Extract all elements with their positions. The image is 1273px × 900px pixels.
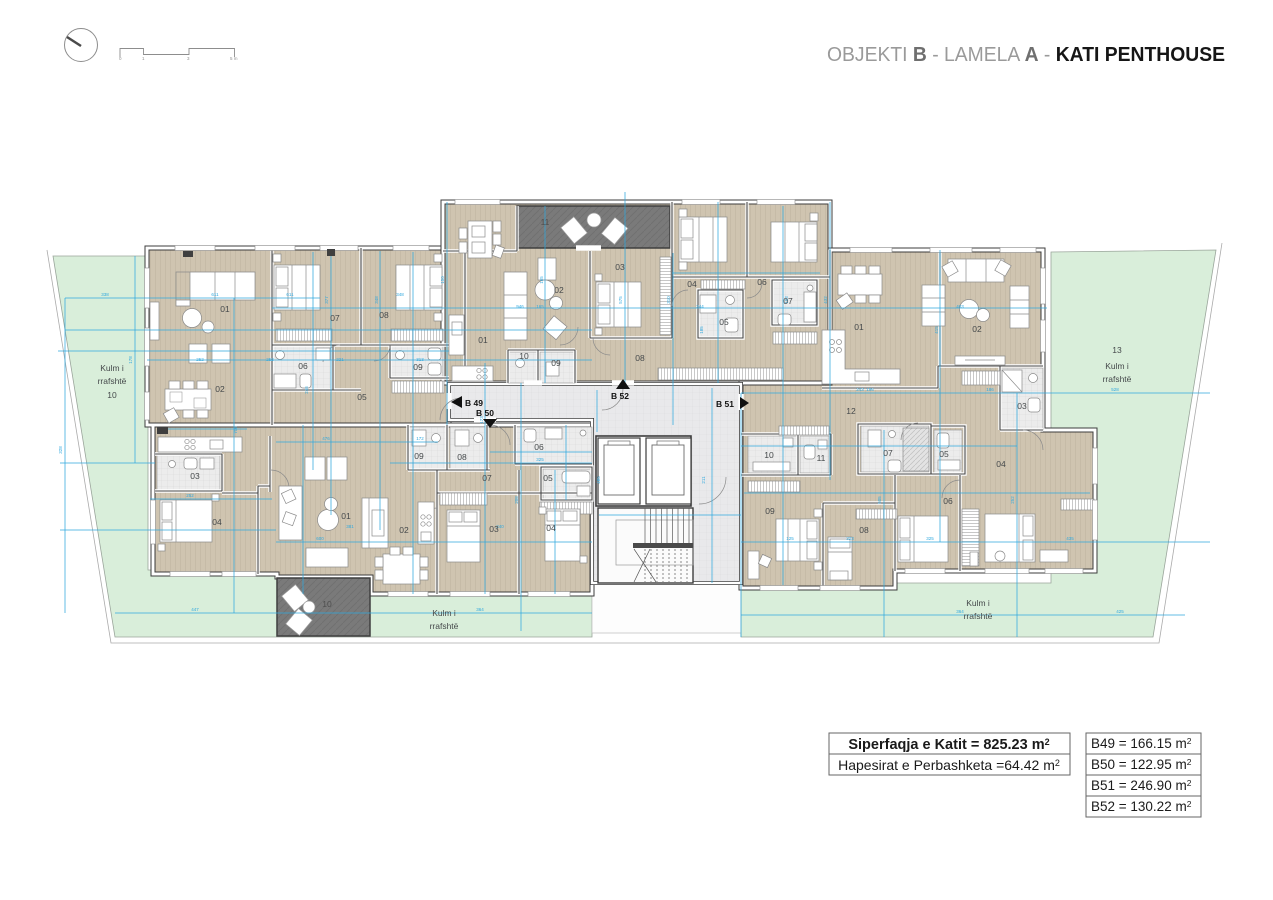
svg-text:07: 07	[482, 473, 492, 483]
svg-text:611: 611	[211, 292, 219, 297]
svg-text:310: 310	[666, 296, 671, 304]
svg-text:125: 125	[786, 536, 794, 541]
svg-text:B 51: B 51	[716, 399, 734, 409]
svg-text:10: 10	[107, 390, 117, 400]
svg-text:08: 08	[859, 525, 869, 535]
svg-text:05: 05	[939, 449, 949, 459]
svg-text:B 50: B 50	[476, 408, 494, 418]
svg-text:485: 485	[596, 476, 601, 484]
svg-text:05: 05	[543, 473, 553, 483]
svg-text:08: 08	[457, 452, 467, 462]
svg-text:425: 425	[1116, 609, 1124, 614]
svg-text:07: 07	[783, 296, 793, 306]
svg-text:06: 06	[534, 442, 544, 452]
svg-text:09: 09	[551, 358, 561, 368]
svg-text:03: 03	[190, 471, 200, 481]
svg-text:476: 476	[322, 436, 330, 441]
svg-text:Hapesirat e Perbashketa =64.4: Hapesirat e Perbashketa =64.42 m2	[838, 757, 1060, 773]
svg-text:252: 252	[266, 357, 274, 362]
svg-text:338: 338	[101, 292, 109, 297]
svg-text:OBJEKTI B - LAMELA A - KATI PE: OBJEKTI B - LAMELA A - KATI PENTHOUSE	[827, 44, 1225, 66]
svg-text:B 52: B 52	[611, 391, 629, 401]
svg-text:165: 165	[539, 276, 544, 284]
svg-text:172: 172	[416, 436, 424, 441]
svg-text:03: 03	[1017, 401, 1027, 411]
svg-text:06: 06	[298, 361, 308, 371]
svg-text:364: 364	[476, 607, 484, 612]
svg-text:06: 06	[943, 496, 953, 506]
svg-text:377: 377	[324, 296, 329, 304]
svg-text:208: 208	[514, 496, 519, 504]
svg-text:08: 08	[379, 310, 389, 320]
svg-text:432: 432	[823, 296, 828, 304]
svg-text:02: 02	[972, 324, 982, 334]
svg-text:03: 03	[615, 262, 625, 272]
svg-text:323: 323	[846, 536, 854, 541]
svg-text:10: 10	[519, 351, 529, 361]
svg-text:01: 01	[854, 322, 864, 332]
svg-text:706: 706	[233, 426, 238, 434]
svg-text:415: 415	[934, 326, 939, 334]
svg-text:06: 06	[757, 277, 767, 287]
svg-text:rrafshtë: rrafshtë	[430, 621, 459, 631]
svg-text:Kulm i: Kulm i	[966, 598, 990, 608]
svg-text:528: 528	[1111, 387, 1119, 392]
svg-text:186: 186	[986, 387, 994, 392]
svg-text:B49 = 166.15 m2: B49 = 166.15 m2	[1091, 736, 1192, 751]
svg-text:B51 = 246.90 m2: B51 = 246.90 m2	[1091, 778, 1192, 793]
svg-text:09: 09	[414, 451, 424, 461]
svg-text:185: 185	[699, 326, 704, 334]
svg-text:09: 09	[413, 362, 423, 372]
svg-text:B50 = 122.95 m2: B50 = 122.95 m2	[1091, 757, 1192, 772]
svg-text:435: 435	[1066, 536, 1074, 541]
svg-text:221: 221	[336, 357, 344, 362]
svg-text:243: 243	[856, 387, 864, 392]
svg-text:10: 10	[764, 450, 774, 460]
svg-text:252: 252	[186, 493, 194, 498]
svg-text:02: 02	[215, 384, 225, 394]
svg-text:178: 178	[128, 356, 133, 364]
svg-text:Kulm i: Kulm i	[100, 363, 124, 373]
svg-text:13: 13	[1112, 345, 1122, 355]
svg-text:rrafshtë: rrafshtë	[98, 376, 127, 386]
svg-text:01: 01	[341, 511, 351, 521]
svg-text:252: 252	[196, 357, 204, 362]
svg-text:02: 02	[399, 525, 409, 535]
svg-text:03: 03	[489, 524, 499, 534]
svg-text:403: 403	[956, 304, 964, 309]
svg-text:196: 196	[866, 387, 874, 392]
svg-text:381: 381	[346, 524, 354, 529]
svg-text:348: 348	[396, 292, 404, 297]
svg-text:Kulm i: Kulm i	[432, 608, 456, 618]
svg-text:5 m: 5 m	[230, 56, 238, 61]
svg-text:rrafshtë: rrafshtë	[964, 611, 993, 621]
svg-text:600: 600	[316, 536, 324, 541]
svg-text:Siperfaqja e Katit = 825.23 m2: Siperfaqja e Katit = 825.23 m2	[848, 737, 1049, 753]
svg-text:09: 09	[765, 506, 775, 516]
svg-text:B52 = 130.22 m2: B52 = 130.22 m2	[1091, 799, 1192, 814]
svg-text:325: 325	[536, 457, 544, 462]
svg-text:04: 04	[996, 459, 1006, 469]
svg-text:946: 946	[516, 304, 524, 309]
svg-text:07: 07	[883, 448, 893, 458]
svg-text:08: 08	[635, 353, 645, 363]
svg-text:244: 244	[696, 304, 704, 309]
svg-text:Kulm i: Kulm i	[1105, 361, 1129, 371]
svg-text:447: 447	[191, 607, 199, 612]
svg-text:rrafshtë: rrafshtë	[1103, 374, 1132, 384]
svg-text:252: 252	[1010, 496, 1015, 504]
svg-text:05: 05	[357, 392, 367, 402]
svg-text:10: 10	[322, 599, 332, 609]
svg-text:328: 328	[58, 446, 63, 454]
svg-text:611: 611	[286, 292, 294, 297]
svg-text:348: 348	[374, 296, 379, 304]
svg-text:04: 04	[687, 279, 697, 289]
svg-text:02: 02	[554, 285, 564, 295]
svg-text:04: 04	[546, 523, 556, 533]
svg-text:07: 07	[330, 313, 340, 323]
svg-text:325: 325	[926, 536, 934, 541]
svg-text:11: 11	[817, 453, 826, 463]
svg-text:211: 211	[701, 476, 706, 484]
svg-text:01: 01	[220, 304, 230, 314]
svg-text:12: 12	[846, 406, 856, 416]
svg-text:B 49: B 49	[465, 398, 483, 408]
svg-text:05: 05	[719, 317, 729, 327]
svg-text:01: 01	[478, 335, 488, 345]
svg-text:150: 150	[440, 276, 445, 284]
svg-text:11: 11	[541, 217, 550, 227]
svg-text:246: 246	[304, 386, 309, 394]
svg-text:165: 165	[536, 304, 544, 309]
svg-text:505: 505	[877, 496, 882, 504]
svg-text:04: 04	[212, 517, 222, 527]
svg-text:575: 575	[618, 296, 623, 304]
